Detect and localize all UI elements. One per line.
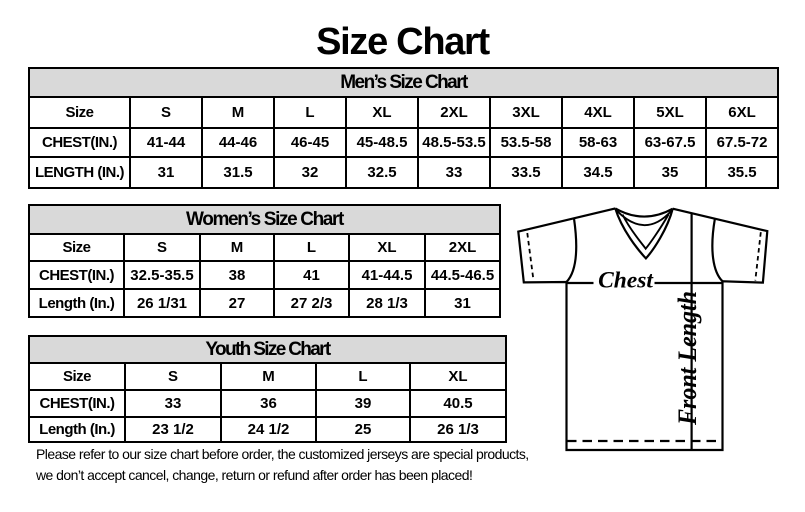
svg-text:Front Length: Front Length xyxy=(673,291,702,426)
svg-text:Chest: Chest xyxy=(598,268,654,294)
